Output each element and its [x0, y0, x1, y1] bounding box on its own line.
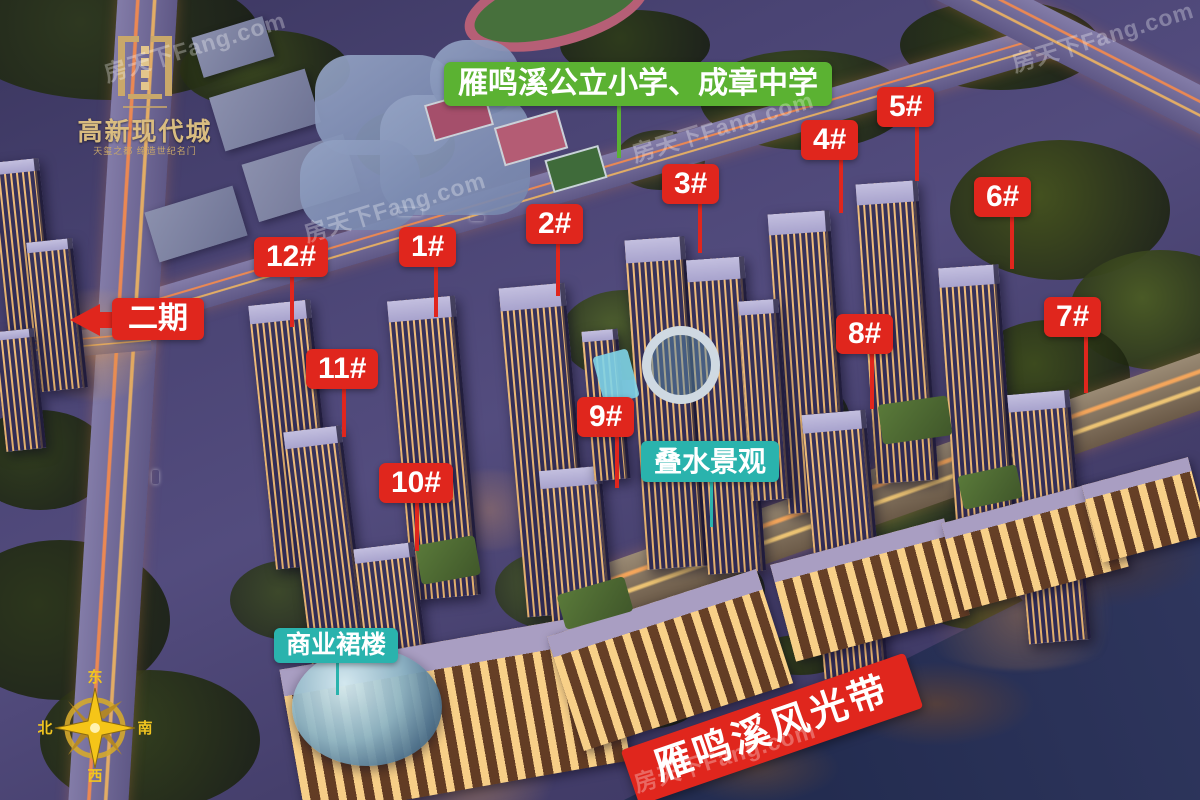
building-line-6 [1010, 216, 1014, 269]
developer-logo: 高新现代城 天玺之都 缔造世纪名门 [70, 30, 220, 165]
compass-rose: 东 南 西 北 [38, 668, 152, 782]
building-label-4: 4# [801, 120, 858, 160]
building-line-11 [342, 389, 346, 437]
fountain [642, 326, 720, 404]
building-label-8: 8# [836, 314, 893, 354]
school-label: 雁鸣溪公立小学、成章中学 [444, 62, 832, 106]
building-line-12 [290, 277, 294, 327]
commercial-podium-label: 商业裙楼 [274, 628, 398, 663]
building-label-10: 10# [379, 463, 453, 503]
water-feature-label: 叠水景观 [641, 441, 779, 482]
building-label-9: 9# [577, 397, 634, 437]
logo-tagline: 天玺之都 缔造世纪名门 [70, 144, 220, 157]
logo-title: 高新现代城 [70, 112, 220, 148]
compass-north: 北 [38, 720, 53, 737]
commercial-podium-line [336, 662, 339, 695]
building-label-12: 12# [254, 237, 328, 277]
building-line-8 [870, 352, 874, 409]
car [152, 470, 159, 484]
compass-south: 南 [137, 719, 152, 737]
building-label-3: 3# [662, 164, 719, 204]
building-line-10 [415, 498, 419, 551]
building-label-5: 5# [877, 87, 934, 127]
building-line-5 [915, 125, 919, 181]
compass-west: 西 [87, 768, 102, 782]
car [470, 215, 484, 221]
building-line-3 [698, 203, 702, 253]
logo-emblem-icon [100, 30, 190, 104]
compass-center [90, 723, 100, 733]
building-label-7: 7# [1044, 297, 1101, 337]
building-label-2: 2# [526, 204, 583, 244]
building-line-1 [434, 267, 438, 317]
building-line-9 [615, 433, 619, 488]
glass-dome [292, 648, 442, 766]
building-line-7 [1084, 337, 1088, 393]
aerial-rendering: 高新现代城 天玺之都 缔造世纪名门 雁鸣溪公立小学、成章中学 二期 1# 2# … [0, 0, 1200, 800]
building-line-2 [556, 242, 560, 296]
building-label-6: 6# [974, 177, 1031, 217]
compass-east: 东 [87, 668, 102, 686]
phase2-label: 二期 [112, 298, 204, 340]
school-pointer-line [617, 105, 621, 158]
green-roof [878, 395, 953, 444]
building-line-4 [839, 157, 843, 213]
building-label-11: 11# [306, 349, 378, 389]
school-building [300, 140, 420, 230]
building-label-1: 1# [399, 227, 456, 267]
logo-divider [123, 106, 167, 108]
car [398, 208, 422, 216]
water-feature-line [710, 481, 713, 527]
